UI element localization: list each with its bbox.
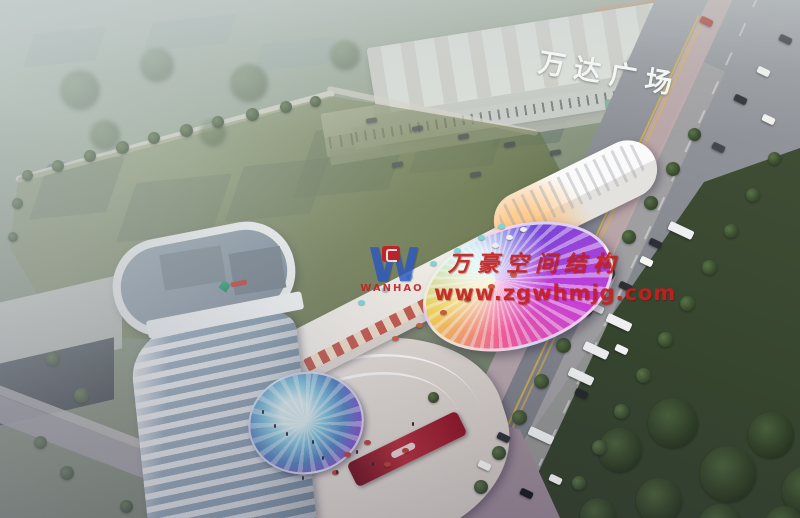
pedestrian [322,456,324,460]
hazy-building [254,36,336,71]
tree [688,128,701,141]
tree [428,392,439,403]
umbrella [506,235,513,240]
tree [474,480,488,494]
pedestrian [356,450,358,454]
watermark-badge-icon [382,246,400,262]
tree [74,388,89,403]
parked-car [550,149,562,156]
umbrella [416,323,423,328]
tree [34,436,47,449]
tree [666,162,680,176]
tree [180,124,193,137]
pedestrian [286,432,288,436]
watermark-logo-name: WANHAO [360,283,424,294]
park-tree [748,412,794,458]
tree [724,224,738,238]
park-tree [648,398,698,448]
umbrella [440,310,447,315]
tree [84,150,96,162]
tree [636,368,651,383]
tree [310,96,321,107]
tree [46,352,60,366]
tree [768,152,781,165]
tree [116,141,129,154]
umbrella [520,227,527,232]
tree [644,196,658,210]
tree [680,296,695,311]
tree [280,101,292,113]
tree [12,198,23,209]
watermark-company: 万豪空间结构 [434,246,676,278]
tree [492,446,506,460]
umbrella [384,462,391,467]
pedestrian [336,470,338,474]
tree [556,338,571,353]
hazy-tree [60,70,100,110]
watermark: W WANHAO 万豪空间结构 www.zgwhmjg.com [360,246,676,305]
tree [746,188,760,202]
tree [8,232,18,242]
tree [52,160,64,172]
umbrella [478,235,485,240]
tree [512,410,527,425]
tree [658,332,673,347]
tree [702,260,717,275]
hazy-building [143,14,236,52]
watermark-website: www.zgwhmjg.com [434,281,676,305]
park-tree [636,478,682,518]
umbrella [392,336,399,341]
umbrella [344,452,351,457]
tree [534,374,549,389]
tree [622,230,636,244]
tree [60,466,74,480]
hazy-building [23,26,107,67]
tree [572,476,586,490]
tree [120,500,133,513]
tree [246,108,259,121]
umbrella [498,224,505,229]
hazy-tree [140,48,174,82]
pedestrian [412,422,414,426]
tree [22,170,33,181]
tree [614,404,629,419]
aerial-render-scene: 万达广场 W WA [0,0,800,518]
tower-logo-wordmark [231,279,248,287]
umbrella [402,448,409,453]
pedestrian [312,440,314,444]
umbrella [364,440,371,445]
hazy-tree [330,40,360,70]
tree [148,132,160,144]
pedestrian [372,462,374,466]
hazy-tree [230,64,268,102]
tree [212,116,224,128]
watermark-text-block: 万豪空间结构 www.zgwhmjg.com [434,246,676,305]
pedestrian [274,424,276,428]
pedestrian [262,410,264,414]
park-tree [700,446,756,502]
tree [592,440,607,455]
watermark-logo: W WANHAO [360,246,424,294]
pedestrian [302,476,304,480]
